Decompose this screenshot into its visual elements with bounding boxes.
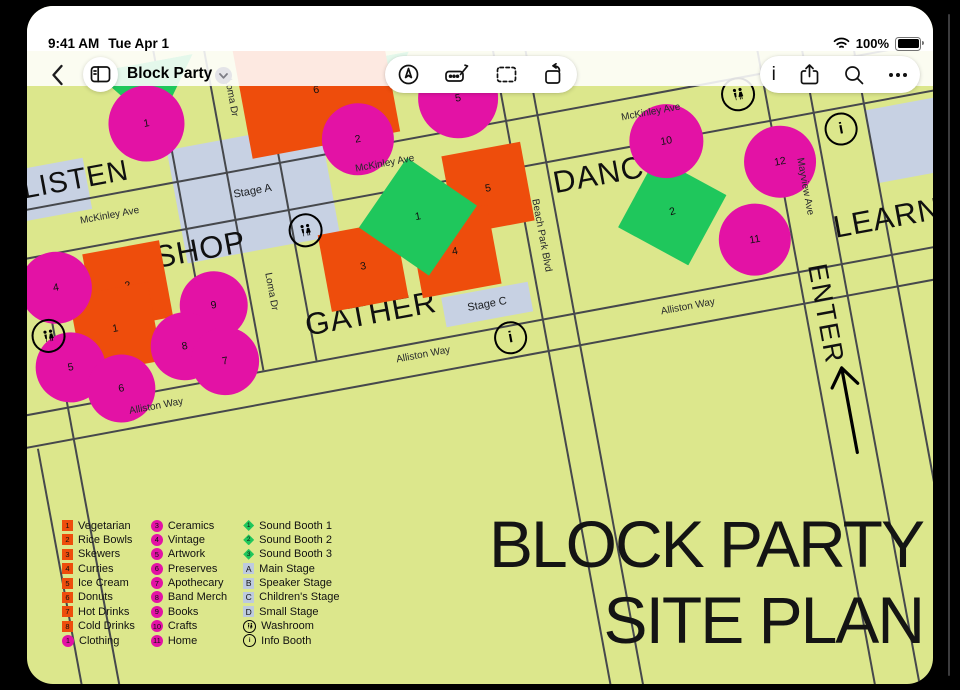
- legend-item[interactable]: 4Curries: [62, 563, 135, 574]
- legend-item[interactable]: 5Artwork: [151, 549, 227, 560]
- market-circle-marker: 6: [151, 563, 163, 575]
- legend-item[interactable]: 6Preserves: [151, 563, 227, 574]
- drawing-tools-pill: [385, 56, 577, 93]
- street-label-beach-park: Beach Park Blvd: [529, 198, 553, 273]
- food-square-marker: 8: [62, 621, 73, 632]
- market-circle-marker: 1: [62, 635, 74, 647]
- market-circle-marker: 11: [151, 635, 163, 647]
- street-label-alliston: Alliston Way: [660, 297, 716, 318]
- legend-item[interactable]: 2Rice Bowls: [62, 534, 135, 545]
- ipad-screen: LISTEN SHOP GATHER DANCE LEARN 6 2 1 3 5…: [27, 6, 933, 684]
- legend-item[interactable]: 1Sound Booth 1: [243, 520, 339, 531]
- chevron-down-icon: [219, 73, 228, 79]
- document-title[interactable]: Block Party: [127, 57, 212, 91]
- boards-sidebar-icon: [90, 65, 111, 84]
- market-circle-marker: 7: [151, 577, 163, 589]
- legend-item[interactable]: 3Sound Booth 3: [243, 549, 339, 560]
- enter-arrow[interactable]: [817, 352, 881, 461]
- legend-item[interactable]: 4Vintage: [151, 534, 227, 545]
- status-bar-right: 100%: [833, 36, 921, 51]
- legend-column-market: 3Ceramics 4Vintage 5Artwork 6Preserves 7…: [151, 520, 227, 646]
- legend-column-stages: 1Sound Booth 1 2Sound Booth 2 3Sound Boo…: [243, 520, 339, 646]
- street-label-alliston: Alliston Way: [395, 345, 451, 366]
- legend-item[interactable]: 1Vegetarian: [62, 520, 135, 531]
- legend-item[interactable]: 1Clothing: [62, 635, 135, 646]
- status-bar-left: 9:41 AMTue Apr 1: [48, 36, 178, 51]
- food-square-marker: 1: [62, 520, 73, 531]
- stage-marker: C: [243, 592, 254, 603]
- stage-marker: A: [243, 563, 254, 574]
- search-icon[interactable]: [843, 64, 865, 86]
- legend-item[interactable]: AMain Stage: [243, 563, 339, 574]
- legend-item[interactable]: Washroom: [243, 621, 339, 632]
- stage-marker: B: [243, 578, 254, 589]
- title-menu-button[interactable]: [215, 67, 232, 84]
- actions-pill: i: [760, 56, 920, 93]
- sound-booth-marker: 2: [243, 534, 254, 545]
- legend-item[interactable]: 11Home: [151, 635, 227, 646]
- battery-icon: [895, 37, 921, 51]
- sound-booth-marker: 1: [243, 520, 254, 531]
- market-circle[interactable]: 11: [713, 198, 797, 282]
- legend-item[interactable]: CChildren's Stage: [243, 592, 339, 603]
- share-icon[interactable]: [799, 63, 820, 86]
- legend-item[interactable]: 7Hot Drinks: [62, 606, 135, 617]
- info-button[interactable]: i: [772, 64, 776, 86]
- market-circle-marker: 4: [151, 534, 163, 546]
- legend-item[interactable]: BSpeaker Stage: [243, 578, 339, 589]
- poster-title-line2: SITE PLAN: [489, 582, 923, 658]
- poster-title[interactable]: BLOCK PARTY SITE PLAN: [489, 506, 923, 658]
- legend-item[interactable]: 5Ice Cream: [62, 578, 135, 589]
- food-square-marker: 2: [62, 534, 73, 545]
- market-circle-marker: 8: [151, 591, 163, 603]
- status-date: Tue Apr 1: [108, 36, 169, 51]
- street-label-loma: Loma Dr: [262, 272, 280, 312]
- poster-title-line1: BLOCK PARTY: [489, 506, 923, 582]
- select-tool-icon[interactable]: [495, 63, 518, 86]
- legend-item[interactable]: iInfo Booth: [243, 635, 339, 646]
- washroom-icon: [243, 620, 256, 633]
- legend-item[interactable]: 6Donuts: [62, 592, 135, 603]
- market-circle-marker: 9: [151, 606, 163, 618]
- food-square-marker: 3: [62, 549, 73, 560]
- boards-sidebar-button[interactable]: [83, 57, 118, 92]
- food-square-marker: 4: [62, 563, 73, 574]
- map-legend[interactable]: 1Vegetarian 2Rice Bowls 3Skewers 4Currie…: [62, 520, 340, 646]
- sound-booth-marker: 3: [243, 549, 254, 560]
- back-button[interactable]: [51, 64, 64, 86]
- battery-percent: 100%: [856, 36, 889, 51]
- info-booth-icon[interactable]: i: [822, 110, 860, 148]
- info-booth-icon[interactable]: i: [491, 319, 529, 357]
- legend-item[interactable]: 8Band Merch: [151, 592, 227, 603]
- draw-tool-icon[interactable]: [397, 63, 420, 86]
- info-booth-icon: i: [243, 634, 256, 647]
- device-edge: [948, 14, 950, 676]
- food-square-marker: 6: [62, 592, 73, 603]
- stage-marker: D: [243, 606, 254, 617]
- legend-item[interactable]: 3Skewers: [62, 549, 135, 560]
- legend-item[interactable]: 3Ceramics: [151, 520, 227, 531]
- more-icon[interactable]: [888, 72, 908, 78]
- legend-item[interactable]: 8Cold Drinks: [62, 621, 135, 632]
- legend-item[interactable]: 9Books: [151, 606, 227, 617]
- food-square-marker: 7: [62, 606, 73, 617]
- legend-item[interactable]: 2Sound Booth 2: [243, 534, 339, 545]
- legend-column-food: 1Vegetarian 2Rice Bowls 3Skewers 4Currie…: [62, 520, 135, 646]
- market-circle-marker: 5: [151, 548, 163, 560]
- legend-item[interactable]: DSmall Stage: [243, 606, 339, 617]
- markup-tool-icon[interactable]: [444, 63, 470, 86]
- wifi-icon: [833, 37, 850, 50]
- legend-item[interactable]: 7Apothecary: [151, 578, 227, 589]
- rotate-tool-icon[interactable]: [542, 63, 565, 86]
- status-time: 9:41 AM: [48, 36, 99, 51]
- food-square-marker: 5: [62, 578, 73, 589]
- market-circle-marker: 3: [151, 520, 163, 532]
- market-circle-marker: 10: [151, 620, 163, 632]
- legend-item[interactable]: 10Crafts: [151, 621, 227, 632]
